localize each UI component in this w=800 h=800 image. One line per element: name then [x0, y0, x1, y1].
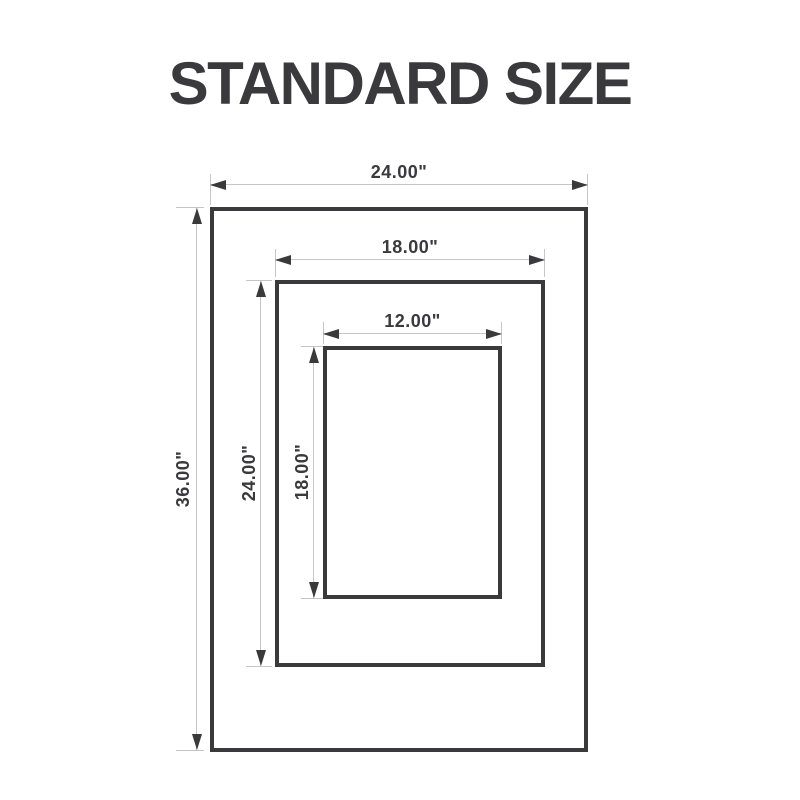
- dimension-line: [196, 208, 197, 750]
- arrowhead-down-icon: [192, 734, 202, 750]
- dimension-line: [210, 184, 588, 185]
- inner-width-label: 12.00": [323, 312, 502, 330]
- inner-height-label: 18.00": [293, 437, 311, 507]
- dimension-line: [313, 347, 314, 598]
- extension-line: [176, 750, 204, 751]
- extension-line: [301, 598, 323, 599]
- arrowhead-up-icon: [256, 281, 266, 297]
- arrowhead-right-icon: [572, 180, 588, 190]
- arrowhead-right-icon: [529, 255, 545, 265]
- arrowhead-down-icon: [256, 650, 266, 666]
- dimension-line: [323, 333, 502, 334]
- arrowhead-down-icon: [309, 582, 319, 598]
- inner-rectangle: [323, 346, 502, 599]
- diagram-canvas: STANDARD SIZE 24.00" 18.00" 12.00": [0, 0, 800, 800]
- arrowhead-right-icon: [486, 329, 502, 339]
- arrowhead-up-icon: [309, 347, 319, 363]
- arrowhead-up-icon: [192, 208, 202, 224]
- outer-height-label: 36.00": [174, 444, 192, 514]
- dimension-line: [260, 281, 261, 666]
- page-title: STANDARD SIZE: [0, 54, 800, 114]
- arrowhead-left-icon: [323, 329, 339, 339]
- middle-width-label: 18.00": [275, 238, 545, 256]
- outer-width-label: 24.00": [210, 163, 588, 181]
- middle-height-label: 24.00": [240, 438, 258, 508]
- arrowhead-left-icon: [275, 255, 291, 265]
- dimension-line: [275, 259, 545, 260]
- arrowhead-left-icon: [210, 180, 226, 190]
- extension-line: [246, 666, 272, 667]
